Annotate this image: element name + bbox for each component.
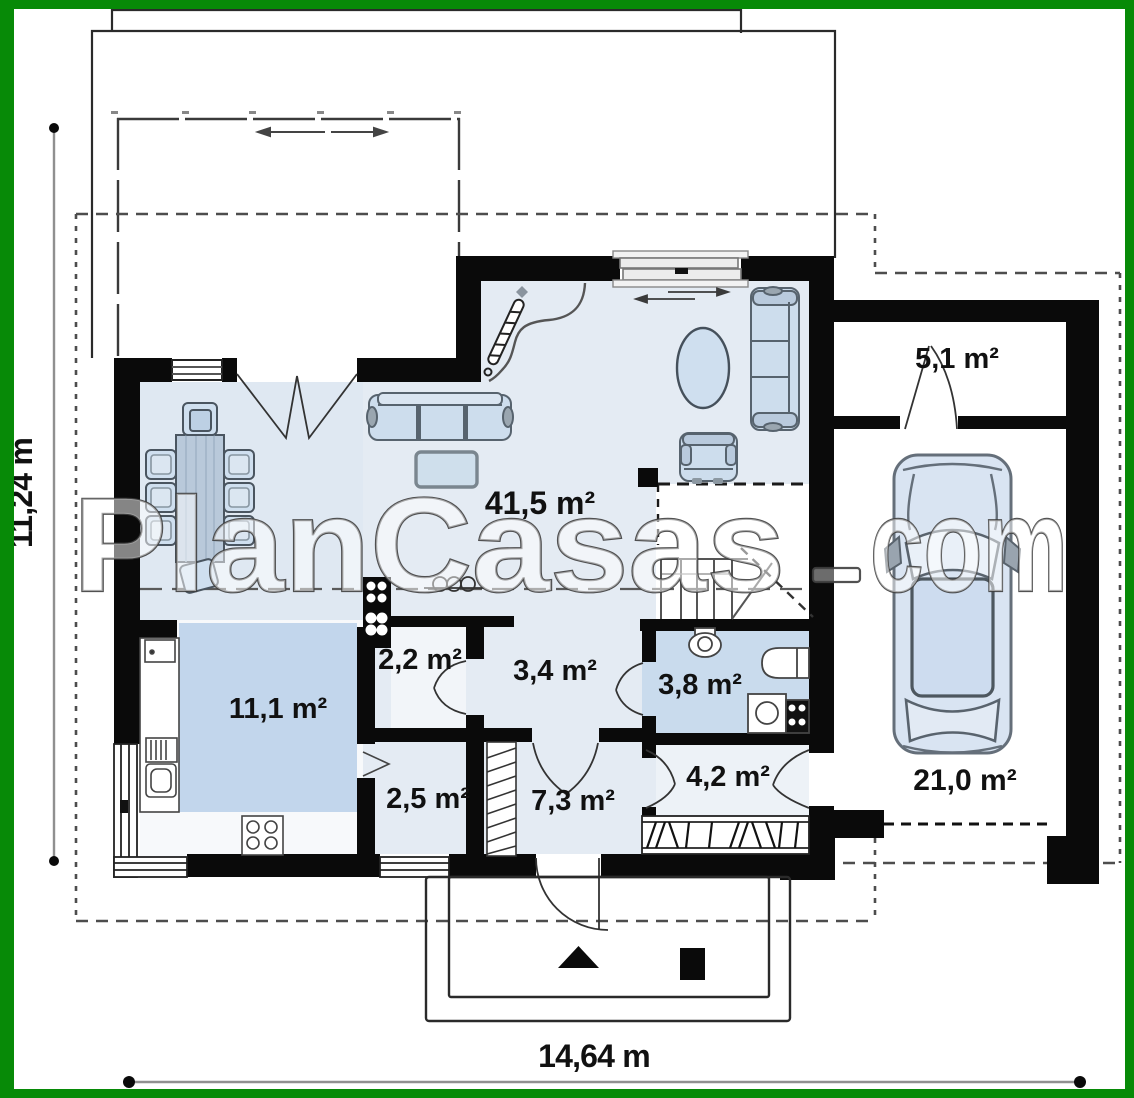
svg-text:com: com — [870, 471, 1068, 620]
svg-text:21,0 m²: 21,0 m² — [913, 764, 1016, 797]
svg-text:3,8 m²: 3,8 m² — [658, 669, 742, 701]
svg-text:3,4 m²: 3,4 m² — [513, 655, 597, 687]
svg-text:41,5 m²: 41,5 m² — [485, 485, 595, 521]
svg-text:2,5 m²: 2,5 m² — [386, 783, 470, 815]
svg-text:14,64 m: 14,64 m — [538, 1038, 650, 1074]
svg-text:11,1 m²: 11,1 m² — [229, 693, 328, 725]
svg-text:5,1 m²: 5,1 m² — [915, 343, 999, 375]
svg-text:2,2 m²: 2,2 m² — [378, 644, 462, 676]
svg-text:4,2 m²: 4,2 m² — [686, 761, 770, 793]
svg-text:PlanCasas: PlanCasas — [73, 471, 785, 620]
svg-text:7,3 m²: 7,3 m² — [531, 785, 615, 817]
